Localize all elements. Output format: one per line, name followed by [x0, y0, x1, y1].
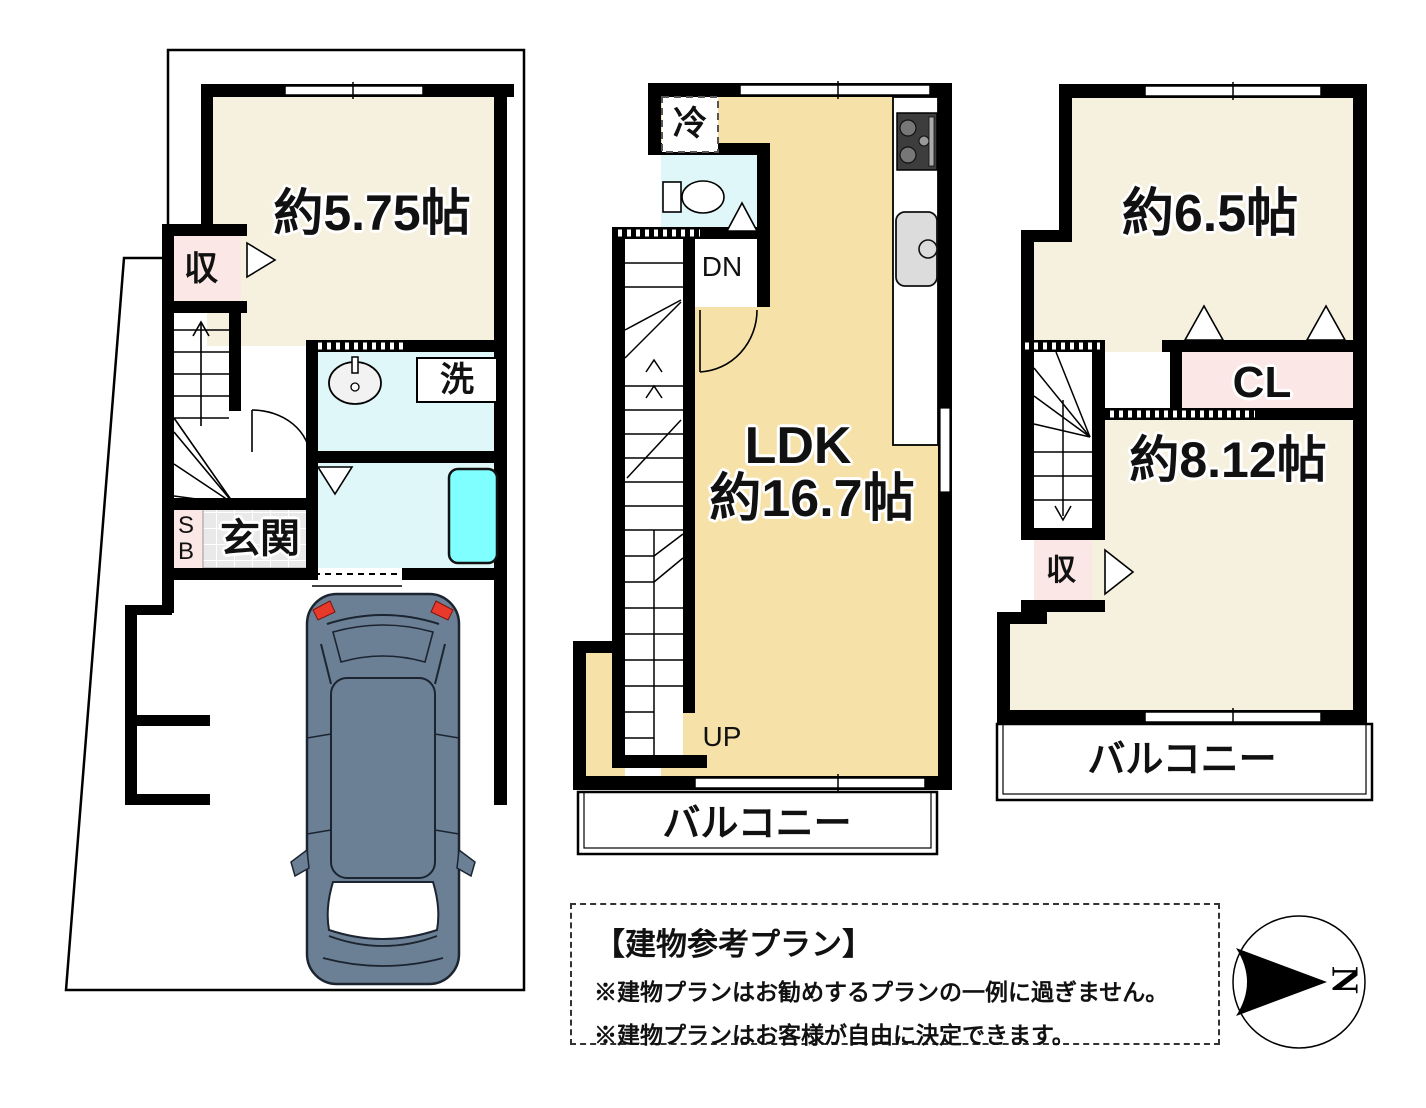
plan-note-line2: ※建物プランはお客様が自由に決定できます。 — [594, 1016, 1218, 1050]
car-icon — [291, 594, 475, 984]
plan-note-line1: ※建物プランはお勧めするプランの一例に過ぎません。 — [594, 973, 1218, 1007]
bedroom1-3f-label: 約6.5帖 — [1122, 188, 1298, 240]
storage-3f-label: 収 — [1046, 556, 1076, 586]
shoebox-label-s: S — [178, 514, 194, 538]
plan-note-box: 【建物参考プラン】 ※建物プランはお勧めするプランの一例に過ぎません。 ※建物プ… — [570, 903, 1220, 1045]
toilet-icon — [663, 181, 724, 213]
entrance-label: 玄関 — [220, 519, 300, 559]
shoebox-label-b: B — [178, 540, 194, 564]
bedroom-1f-label: 約5.75帖 — [273, 188, 470, 238]
bedroom2-3f-floor-strip — [1092, 540, 1106, 710]
closet-cl-label: CL — [1233, 361, 1292, 405]
bedroom1-3f-floor-ext — [1034, 242, 1072, 352]
balcony-3f-label: バルコニー — [1087, 741, 1276, 779]
bathtub-icon — [449, 469, 497, 563]
kitchen-sink-icon — [896, 212, 937, 286]
compass-north-label: N — [1323, 966, 1367, 993]
ldk-size-label: 約16.7帖 — [709, 473, 914, 525]
floorplan-image: 約5.75帖 収 洗 S B 玄関 冷 DN LDK 約16.7帖 UP バルコ… — [0, 0, 1426, 1108]
shoebox-label: S B — [178, 514, 194, 564]
laundry-label: 洗 — [440, 363, 474, 397]
window-2f-right — [940, 408, 950, 492]
stairs-up-label: UP — [703, 723, 742, 751]
bedroom2-3f-label: 約8.12帖 — [1129, 435, 1326, 485]
fridge-label: 冷 — [673, 107, 707, 141]
stairs-down-label: DN — [702, 253, 742, 281]
balcony-2f-label: バルコニー — [662, 805, 851, 843]
storage-1f-label: 収 — [184, 252, 218, 286]
stove-icon — [897, 113, 937, 170]
ldk-label: LDK — [745, 420, 852, 472]
plan-note-title: 【建物参考プラン】 — [594, 919, 1218, 964]
